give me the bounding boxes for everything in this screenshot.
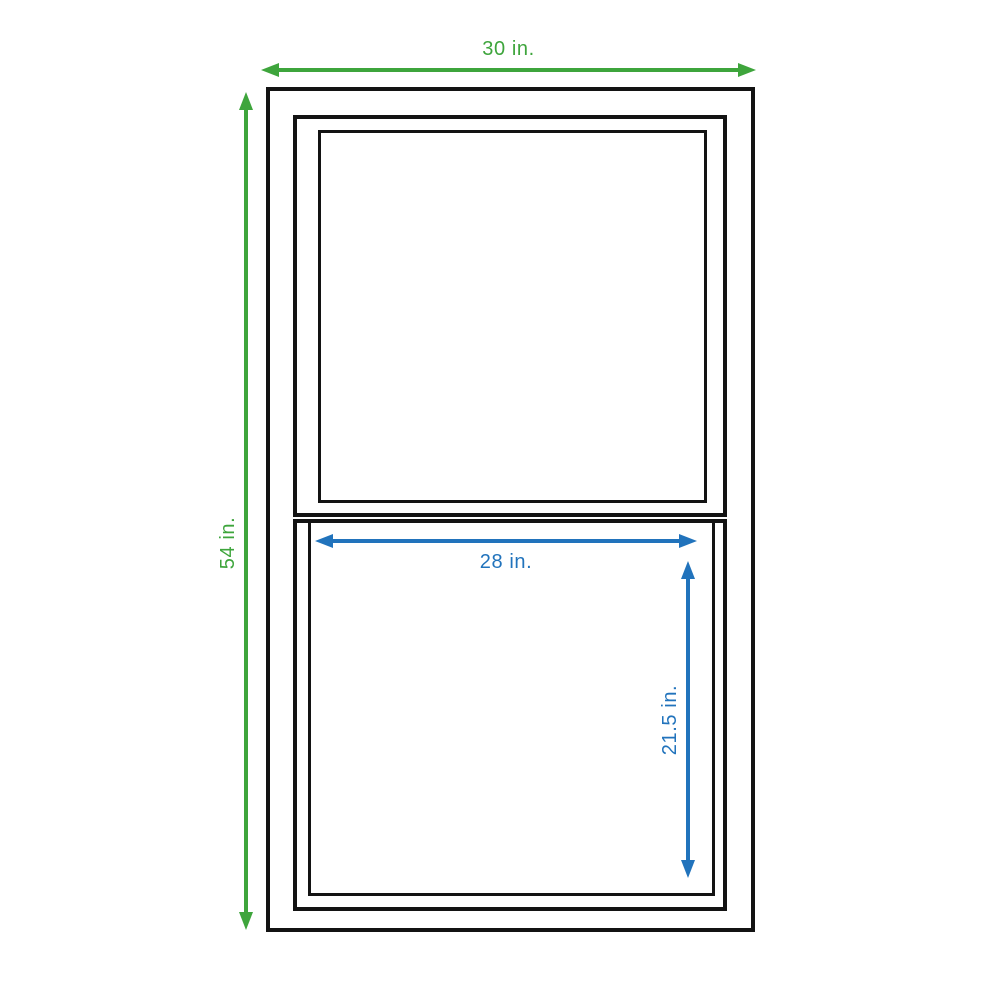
dimension-line: [686, 576, 690, 863]
overall-width-label: 30 in.: [261, 36, 756, 62]
arrowhead-down-icon: [681, 860, 695, 878]
lower-sash-glass-pane: [308, 523, 715, 896]
sash-width-label: 28 in.: [315, 549, 697, 575]
sash-height-label: 21.5 in.: [657, 650, 683, 790]
arrowhead-down-icon: [239, 912, 253, 930]
upper-sash-glass-pane: [318, 130, 707, 503]
overall-height-label: 54 in.: [215, 483, 241, 603]
dimension-line: [276, 68, 741, 72]
arrowhead-right-icon: [738, 63, 756, 77]
arrowhead-right-icon: [679, 534, 697, 548]
overall-width-dimension-arrow: [261, 62, 756, 78]
dimension-line: [330, 539, 682, 543]
dimension-line: [244, 107, 248, 915]
sash-width-dimension-arrow: [315, 533, 697, 549]
window-dimension-diagram: 30 in. 54 in. 28 in. 21.5 in.: [0, 0, 1000, 1000]
